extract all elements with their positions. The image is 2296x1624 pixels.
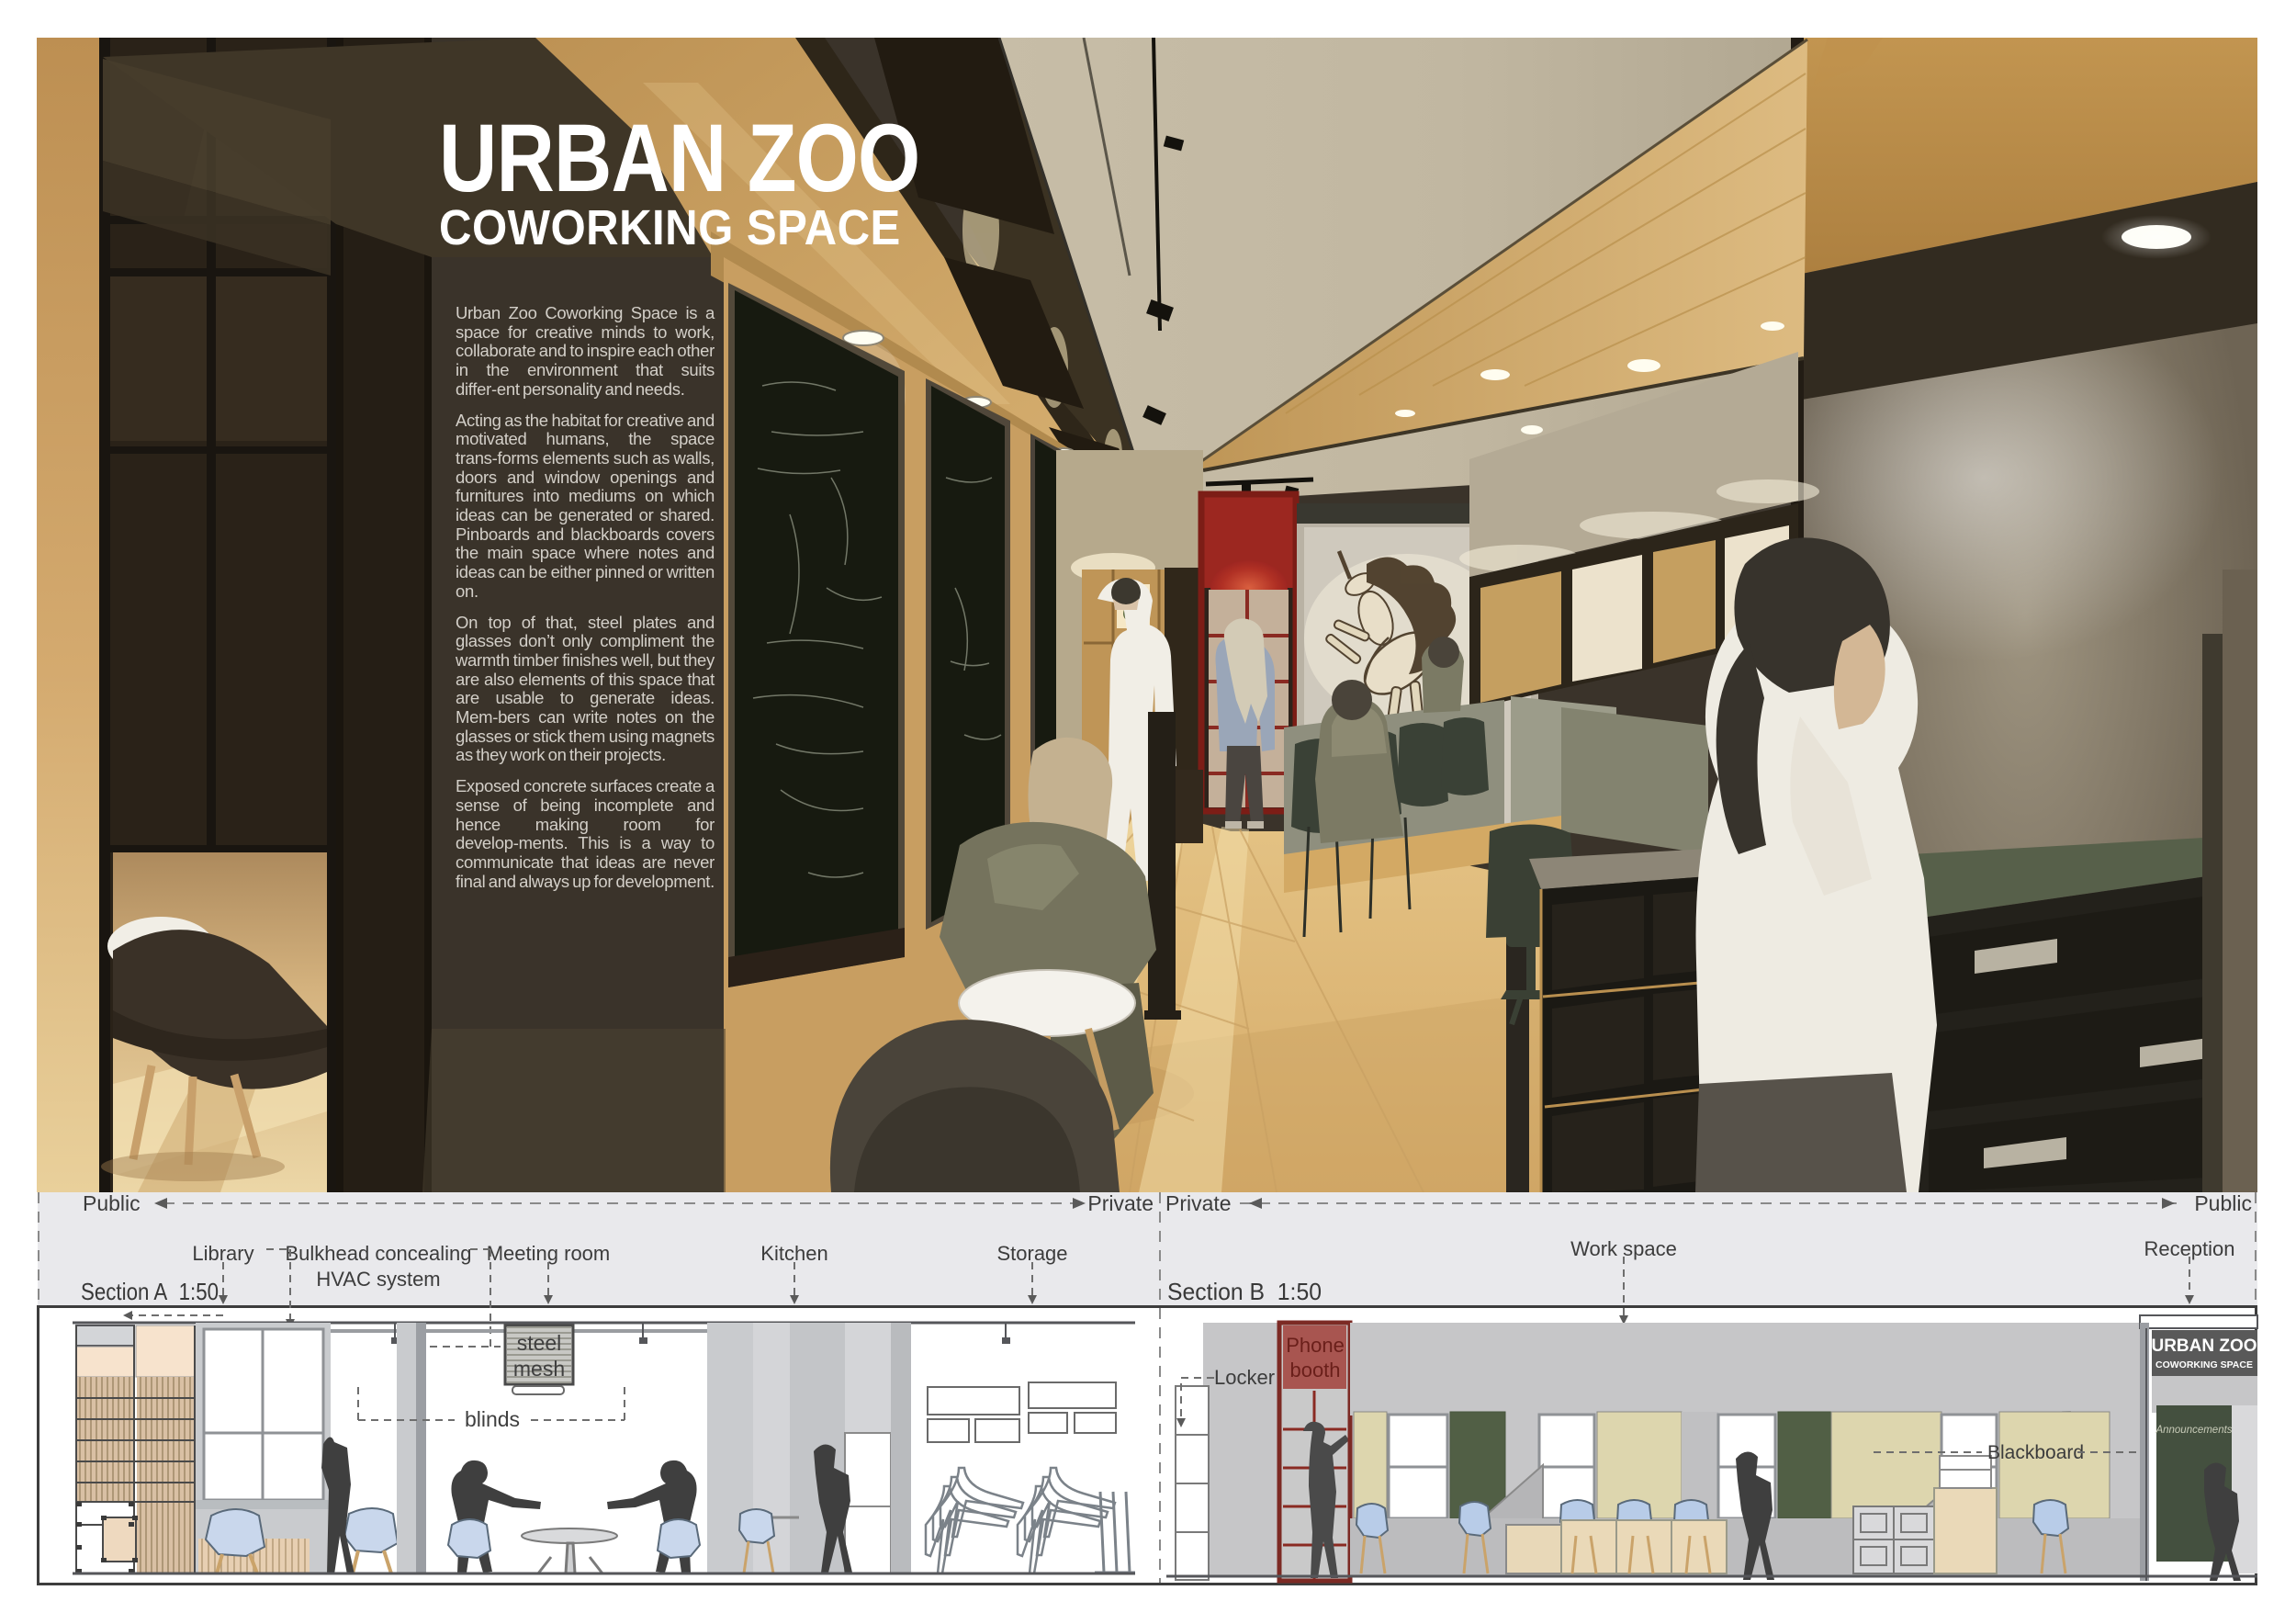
- svg-text:Meeting room: Meeting room: [487, 1242, 611, 1265]
- svg-text:Private: Private: [1165, 1192, 1232, 1215]
- svg-text:Library: Library: [192, 1242, 253, 1265]
- svg-text:Phone: Phone: [1286, 1334, 1345, 1357]
- svg-text:booth: booth: [1289, 1359, 1340, 1382]
- svg-text:Section A 1:50: Section A 1:50: [81, 1278, 219, 1305]
- svg-text:mesh: mesh: [513, 1357, 565, 1381]
- svg-text:Public: Public: [83, 1192, 141, 1215]
- svg-text:Section B 1:50: Section B 1:50: [1167, 1278, 1322, 1305]
- svg-text:Blackboard: Blackboard: [1987, 1442, 2084, 1463]
- svg-text:Private: Private: [1087, 1192, 1154, 1215]
- svg-text:Bulkhead concealing: Bulkhead concealing: [285, 1242, 471, 1265]
- svg-text:COWORKING SPACE: COWORKING SPACE: [2155, 1359, 2253, 1370]
- svg-text:Storage: Storage: [996, 1242, 1067, 1265]
- svg-text:Kitchen: Kitchen: [760, 1242, 827, 1265]
- svg-text:HVAC system: HVAC system: [316, 1268, 440, 1291]
- svg-text:URBAN ZOO: URBAN ZOO: [2151, 1336, 2257, 1356]
- svg-text:Locker: Locker: [1214, 1366, 1275, 1389]
- svg-text:Public: Public: [2194, 1192, 2252, 1215]
- svg-text:steel: steel: [517, 1331, 562, 1355]
- svg-text:blinds: blinds: [465, 1407, 520, 1431]
- svg-text:Announcements: Announcements: [2155, 1425, 2232, 1436]
